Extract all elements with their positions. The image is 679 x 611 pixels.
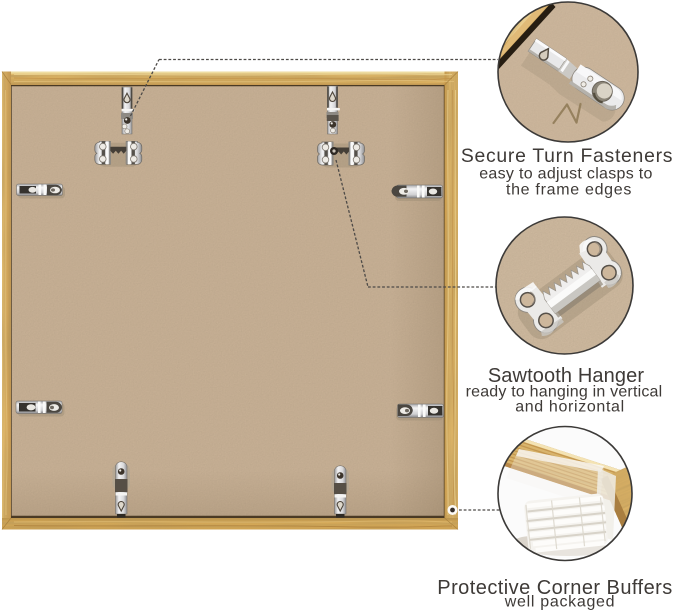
svg-text:easy to adjust clasps to: easy to adjust clasps to <box>479 166 653 183</box>
svg-text:the frame edges: the frame edges <box>506 182 632 199</box>
svg-text:and horizontal: and horizontal <box>515 399 625 416</box>
svg-text:Secure Turn Fasteners: Secure Turn Fasteners <box>461 145 673 167</box>
svg-text:well packaged: well packaged <box>504 594 616 611</box>
